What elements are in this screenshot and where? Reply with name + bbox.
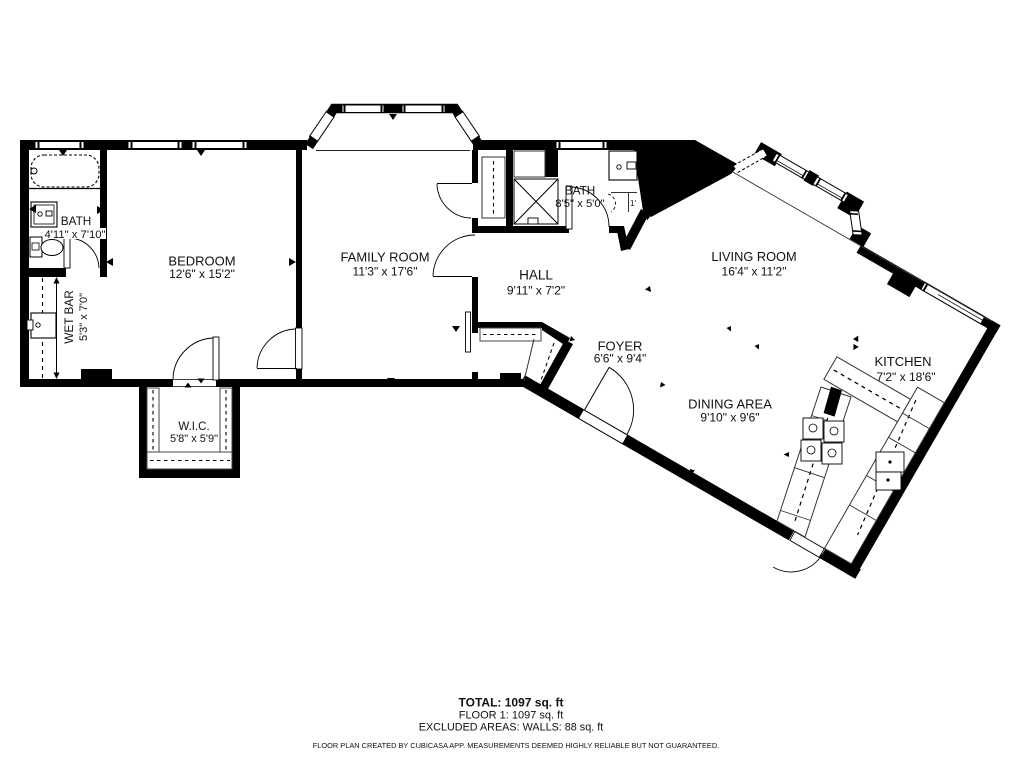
svg-text:1': 1': [630, 199, 636, 208]
svg-text:7'2" x 18'6": 7'2" x 18'6": [876, 370, 935, 384]
svg-text:4'11" x 7'10": 4'11" x 7'10": [44, 229, 105, 241]
svg-text:11'3" x 17'6": 11'3" x 17'6": [353, 265, 418, 279]
svg-text:BATH: BATH: [61, 214, 92, 228]
svg-text:8'5" x 5'0": 8'5" x 5'0": [555, 198, 604, 210]
svg-text:FLOOR PLAN CREATED BY CUBICASA: FLOOR PLAN CREATED BY CUBICASA APP. MEAS…: [313, 741, 719, 750]
svg-text:FLOOR 1: 1097 sq. ft: FLOOR 1: 1097 sq. ft: [459, 710, 564, 722]
svg-text:16'4" x 11'2": 16'4" x 11'2": [722, 265, 787, 279]
svg-text:9'10" x 9'6": 9'10" x 9'6": [700, 411, 759, 425]
svg-text:KITCHEN: KITCHEN: [874, 354, 931, 369]
svg-text:12'6" x 15'2": 12'6" x 15'2": [169, 267, 235, 281]
svg-text:9'11" x 7'2": 9'11" x 7'2": [507, 284, 565, 298]
svg-text:EXCLUDED AREAS: WALLS: 88 sq.: EXCLUDED AREAS: WALLS: 88 sq. ft: [419, 722, 603, 734]
svg-text:TOTAL: 1097 sq. ft: TOTAL: 1097 sq. ft: [459, 696, 564, 710]
svg-text:6'6" x 9'4": 6'6" x 9'4": [594, 352, 646, 366]
svg-text:5'3" x 7'0": 5'3" x 7'0": [78, 293, 90, 341]
svg-text:LIVING ROOM: LIVING ROOM: [711, 249, 796, 264]
svg-text:HALL: HALL: [519, 268, 553, 283]
svg-text:BATH: BATH: [565, 184, 596, 198]
svg-text:5'8" x 5'9": 5'8" x 5'9": [170, 433, 218, 445]
svg-text:W.I.C.: W.I.C.: [178, 421, 209, 433]
svg-text:FAMILY ROOM: FAMILY ROOM: [340, 250, 429, 265]
svg-text:WET BAR: WET BAR: [62, 290, 76, 344]
svg-text:DINING AREA: DINING AREA: [688, 397, 772, 412]
